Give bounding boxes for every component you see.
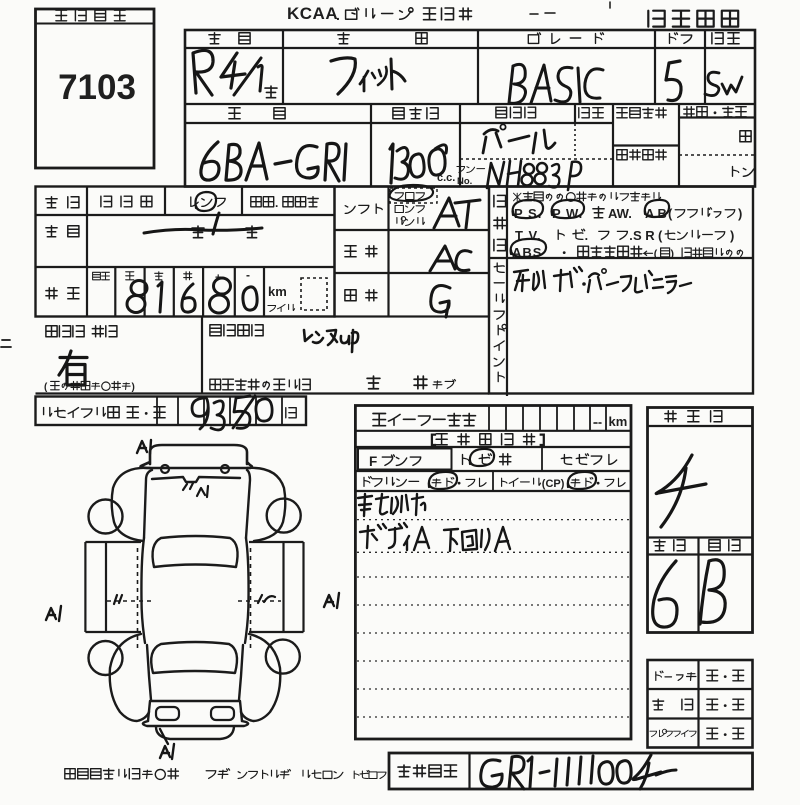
svg-text:AW.: AW. [608,206,632,221]
svg-text:A B: A B [645,206,667,221]
svg-text:KCAA: KCAA [287,4,338,23]
svg-text:): ) [132,382,135,393]
svg-text:S R: S R [633,228,655,243]
svg-text:(: ( [658,228,663,243]
svg-text:-: - [246,268,250,282]
svg-text:km: km [609,414,628,429]
svg-text:(CP): (CP) [542,478,565,490]
svg-text:(: ( [654,248,658,260]
svg-text:): ) [738,206,742,221]
svg-text:km: km [268,284,287,299]
svg-text:): ) [730,228,734,243]
svg-text:7103: 7103 [58,68,136,107]
svg-text:.: . [585,229,588,243]
svg-text:.: . [336,7,340,23]
svg-text:F: F [369,454,377,469]
svg-text:): ) [671,248,675,260]
svg-text:No.: No. [457,176,472,187]
svg-text:c.c.: c.c. [437,172,455,184]
svg-text:.: . [275,196,278,210]
